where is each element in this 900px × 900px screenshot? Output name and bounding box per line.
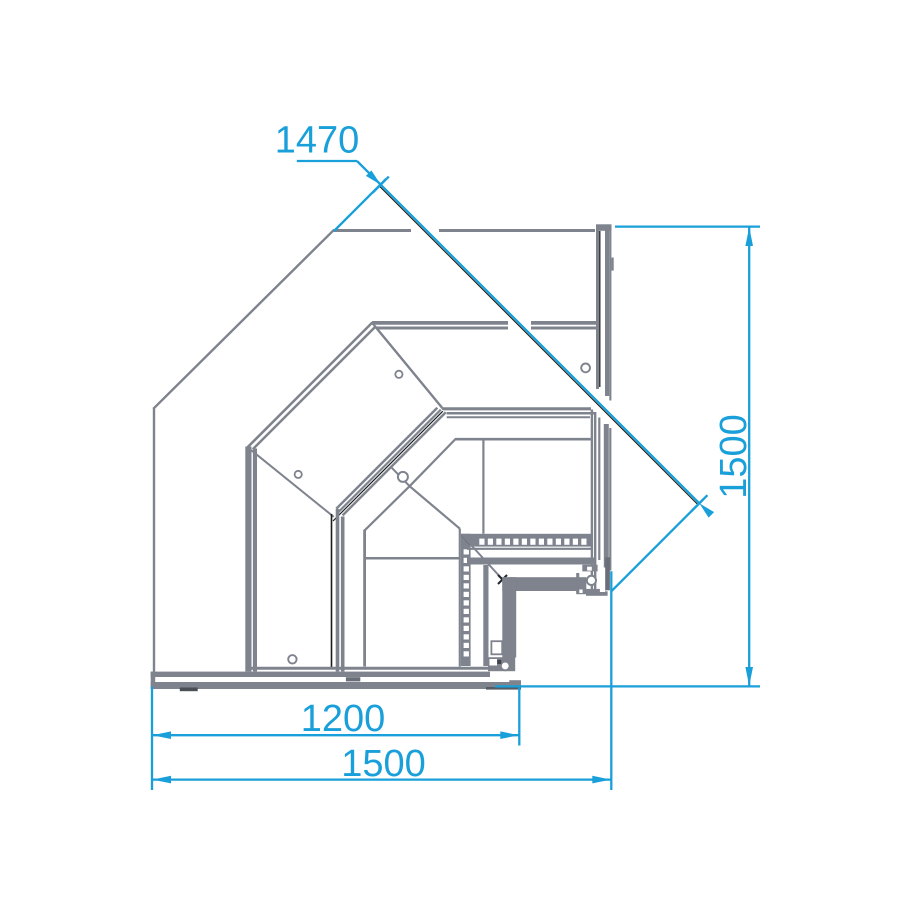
svg-text:1200: 1200 <box>301 698 386 740</box>
svg-text:1500: 1500 <box>713 414 755 499</box>
svg-text:1470: 1470 <box>275 120 360 162</box>
svg-text:1500: 1500 <box>341 743 426 785</box>
